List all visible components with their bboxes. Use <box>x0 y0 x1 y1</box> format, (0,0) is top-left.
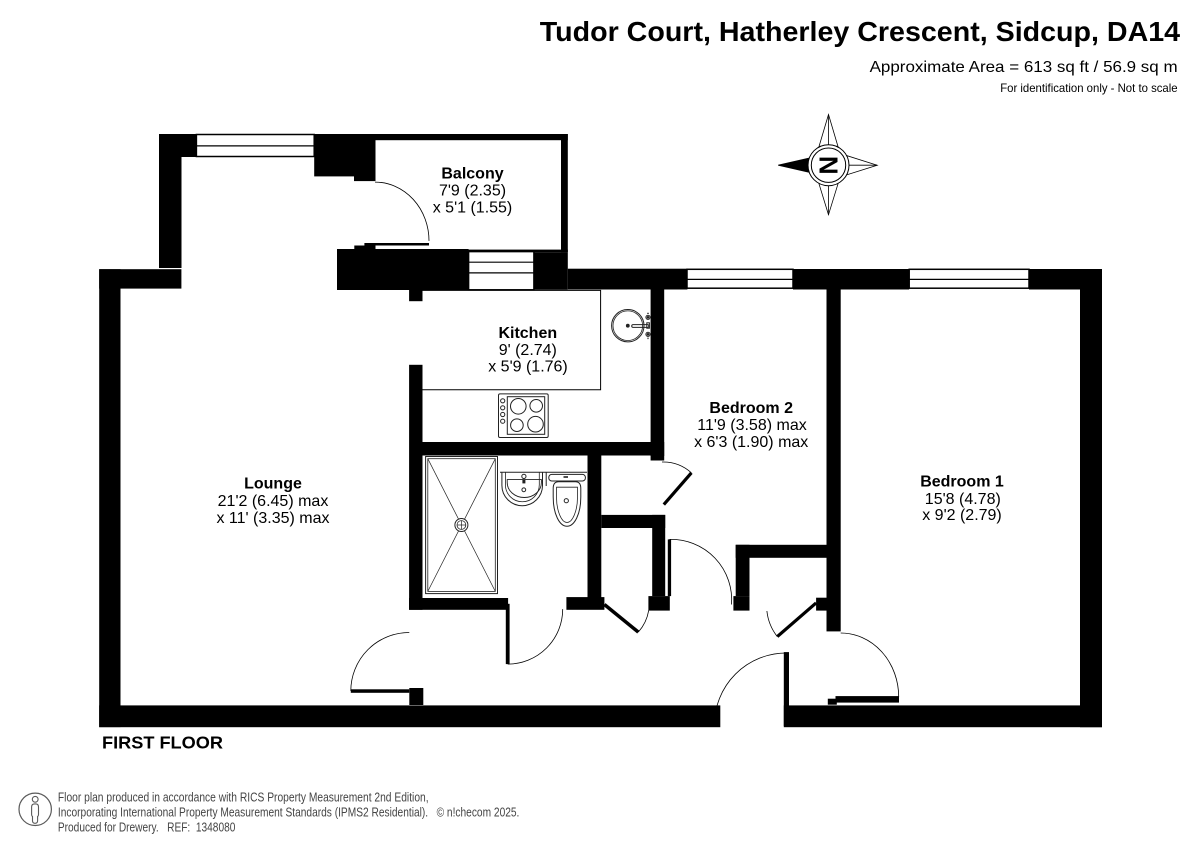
svg-text:x 9'2 (2.79): x 9'2 (2.79) <box>922 507 1002 524</box>
svg-text:Balcony: Balcony <box>441 166 503 183</box>
svg-text:For identification only - Not: For identification only - Not to scale <box>1000 81 1178 95</box>
svg-text:x 6'3 (1.90) max: x 6'3 (1.90) max <box>694 434 808 451</box>
svg-text:Incorporating International Pr: Incorporating International Property Mea… <box>58 805 520 820</box>
svg-text:Tudor Court, Hatherley Crescen: Tudor Court, Hatherley Crescent, Sidcup,… <box>540 16 1181 47</box>
svg-text:x 11' (3.35) max: x 11' (3.35) max <box>216 510 329 527</box>
svg-text:9' (2.74): 9' (2.74) <box>499 342 557 359</box>
svg-text:Approximate Area = 613 sq ft /: Approximate Area = 613 sq ft / 56.9 sq m <box>870 59 1178 76</box>
svg-text:Bedroom 1: Bedroom 1 <box>920 473 1004 490</box>
svg-text:7'9 (2.35): 7'9 (2.35) <box>439 183 506 200</box>
svg-text:N: N <box>814 156 844 175</box>
svg-text:11'9 (3.58) max: 11'9 (3.58) max <box>697 417 806 434</box>
svg-text:Kitchen: Kitchen <box>498 325 557 342</box>
svg-text:21'2 (6.45) max: 21'2 (6.45) max <box>218 493 329 510</box>
svg-text:Lounge: Lounge <box>244 475 302 492</box>
svg-text:15'8 (4.78): 15'8 (4.78) <box>925 491 1001 508</box>
svg-text:x 5'9 (1.76): x 5'9 (1.76) <box>488 359 568 376</box>
svg-text:FIRST FLOOR: FIRST FLOOR <box>102 733 224 753</box>
svg-text:Produced for Drewery. REF:: Produced for Drewery. REF: 1348080 <box>58 820 236 835</box>
svg-text:Floor plan produced in accorda: Floor plan produced in accordance with R… <box>58 790 429 805</box>
svg-text:x 5'1 (1.55): x 5'1 (1.55) <box>433 200 513 217</box>
svg-text:Bedroom 2: Bedroom 2 <box>709 400 793 417</box>
